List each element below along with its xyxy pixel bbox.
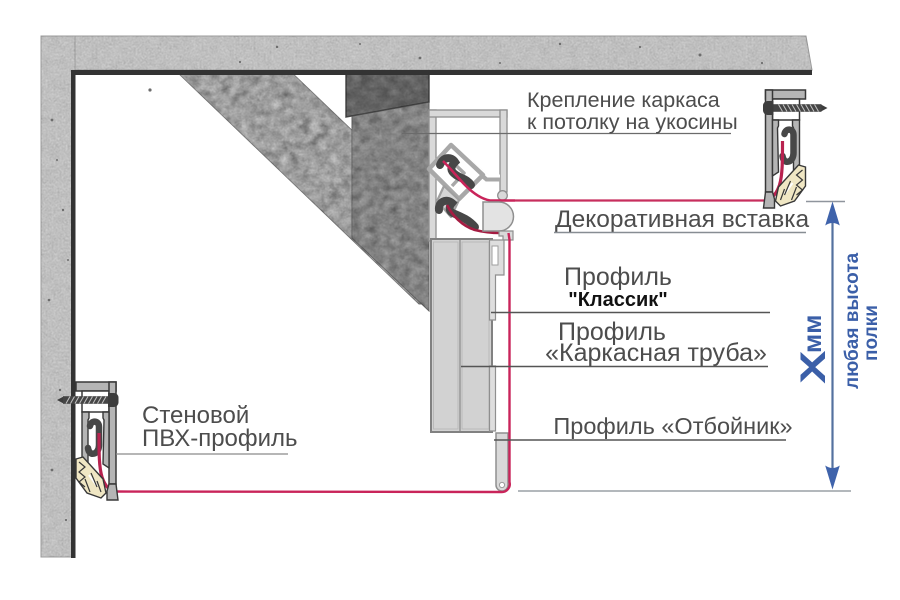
svg-text:X: X xyxy=(794,350,833,384)
svg-text:мм: мм xyxy=(797,315,827,353)
svg-text:Декоративная вставка: Декоративная вставка xyxy=(555,206,810,233)
svg-text:«Каркасная труба»: «Каркасная труба» xyxy=(545,339,767,367)
svg-text:Крепление каркаса: Крепление каркаса xyxy=(527,88,720,112)
svg-text:Профиль: Профиль xyxy=(564,263,672,291)
svg-text:ПВХ-профиль: ПВХ-профиль xyxy=(142,425,298,452)
svg-text:Профиль «Отбойник»: Профиль «Отбойник» xyxy=(553,413,792,439)
svg-text:к потолку на укосины: к потолку на укосины xyxy=(527,110,738,134)
svg-text:"Классик": "Классик" xyxy=(568,289,668,311)
